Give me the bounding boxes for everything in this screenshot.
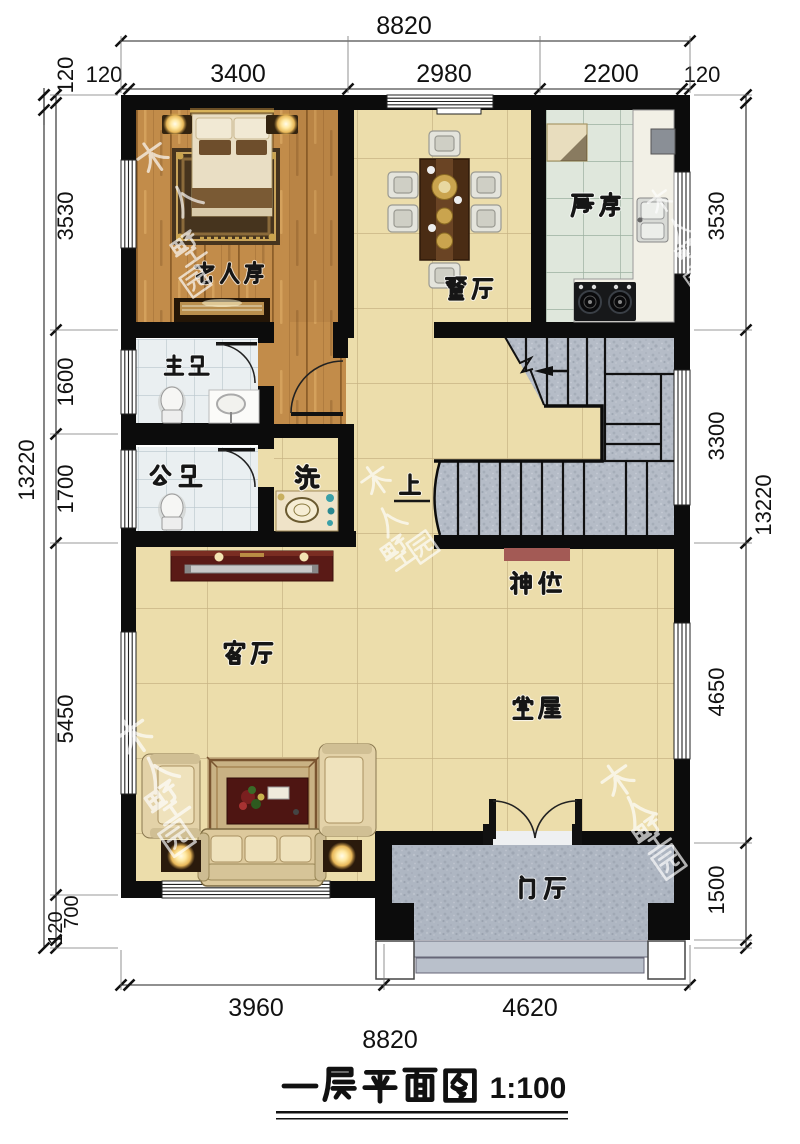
- svg-text:3400: 3400: [210, 60, 266, 88]
- svg-text:13220: 13220: [14, 439, 39, 500]
- svg-text:8820: 8820: [376, 12, 432, 40]
- svg-text:120: 120: [45, 911, 67, 944]
- svg-text:4620: 4620: [502, 994, 558, 1022]
- svg-text:120: 120: [86, 62, 123, 87]
- svg-text:120: 120: [53, 57, 78, 94]
- svg-text:3960: 3960: [228, 994, 284, 1022]
- svg-text:13220: 13220: [751, 474, 776, 535]
- svg-text:3530: 3530: [704, 192, 729, 241]
- svg-text:5450: 5450: [53, 695, 78, 744]
- svg-text:1700: 1700: [53, 465, 78, 514]
- svg-text:8820: 8820: [362, 1026, 418, 1054]
- svg-text:1:100: 1:100: [490, 1072, 567, 1105]
- svg-text:120: 120: [684, 62, 721, 87]
- svg-text:2980: 2980: [416, 60, 472, 88]
- svg-text:3300: 3300: [704, 412, 729, 461]
- svg-text:1600: 1600: [53, 358, 78, 407]
- svg-text:1500: 1500: [704, 866, 729, 915]
- svg-text:3530: 3530: [53, 192, 78, 241]
- svg-text:4650: 4650: [704, 668, 729, 717]
- svg-text:2200: 2200: [583, 60, 639, 88]
